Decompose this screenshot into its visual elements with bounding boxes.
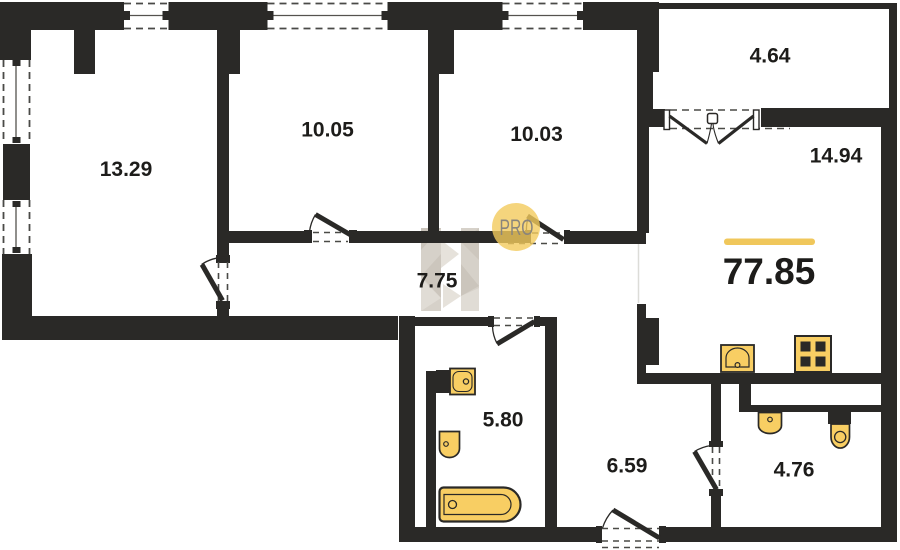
svg-text:14.94: 14.94 — [810, 145, 863, 168]
svg-text:7.75: 7.75 — [417, 270, 458, 293]
svg-text:10.05: 10.05 — [301, 119, 354, 142]
svg-text:4.64: 4.64 — [750, 45, 791, 68]
svg-text:5.80: 5.80 — [483, 409, 524, 432]
svg-text:13.29: 13.29 — [100, 158, 153, 181]
svg-text:77.85: 77.85 — [723, 251, 816, 292]
svg-text:PRO: PRO — [500, 215, 534, 240]
svg-text:4.76: 4.76 — [774, 459, 815, 482]
svg-text:10.03: 10.03 — [510, 123, 563, 146]
svg-text:6.59: 6.59 — [607, 455, 648, 478]
